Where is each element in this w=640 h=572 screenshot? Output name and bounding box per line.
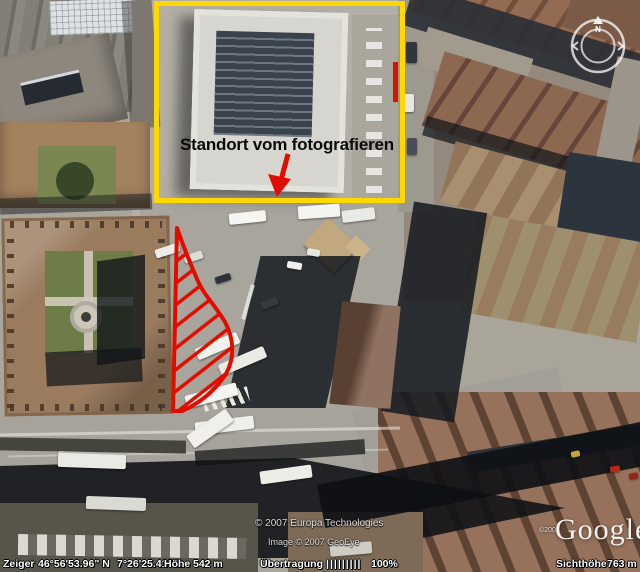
map-feature-courtyard-shadow-bottom: [45, 348, 143, 387]
map-feature-fountain-center: [81, 312, 91, 322]
map-feature-car: [406, 42, 417, 63]
map-feature-bus: [86, 496, 146, 511]
streaming-meter: |||||||||: [326, 558, 361, 570]
credit-image: Image © 2007 GeoEye: [268, 537, 360, 547]
eye-altitude-value: 763 m: [607, 558, 637, 570]
compass-ring[interactable]: N: [566, 14, 630, 78]
compass-left-arrow-icon[interactable]: [573, 42, 578, 50]
map-feature-glass-roof: [49, 0, 132, 35]
map-feature-dormers-left: [7, 228, 14, 408]
map-feature-bottom-facade-row: [18, 534, 246, 559]
map-feature-courtyard-tree: [56, 162, 94, 200]
pointer-latitude: 46°56'53.96" N: [38, 558, 110, 570]
streaming-label: Übertragung: [260, 558, 323, 570]
compass-north-label: N: [595, 25, 601, 34]
elevation-value: 542 m: [193, 558, 223, 570]
satellite-map[interactable]: Standort vom fotografieren N © 2007 Euro…: [0, 0, 640, 572]
elevation-label: Höhe: [164, 558, 190, 570]
streaming-percent: 100%: [371, 558, 398, 570]
map-feature-car: [407, 138, 417, 155]
pointer-label: Zeiger: [3, 558, 35, 570]
highlight-box: [154, 1, 405, 203]
map-feature-car: [404, 94, 414, 112]
map-feature-dormers-top: [10, 221, 162, 228]
annotation-label: Standort vom fotografieren: [180, 135, 394, 155]
map-feature-bus: [58, 451, 127, 469]
google-logo: Google: [555, 513, 640, 547]
credit-provider: © 2007 Europa Technologies: [255, 518, 383, 529]
map-feature-dormers-bottom: [10, 404, 162, 411]
eye-altitude-label: Sichthöhe: [556, 558, 607, 570]
compass-right-arrow-icon[interactable]: [618, 42, 623, 50]
